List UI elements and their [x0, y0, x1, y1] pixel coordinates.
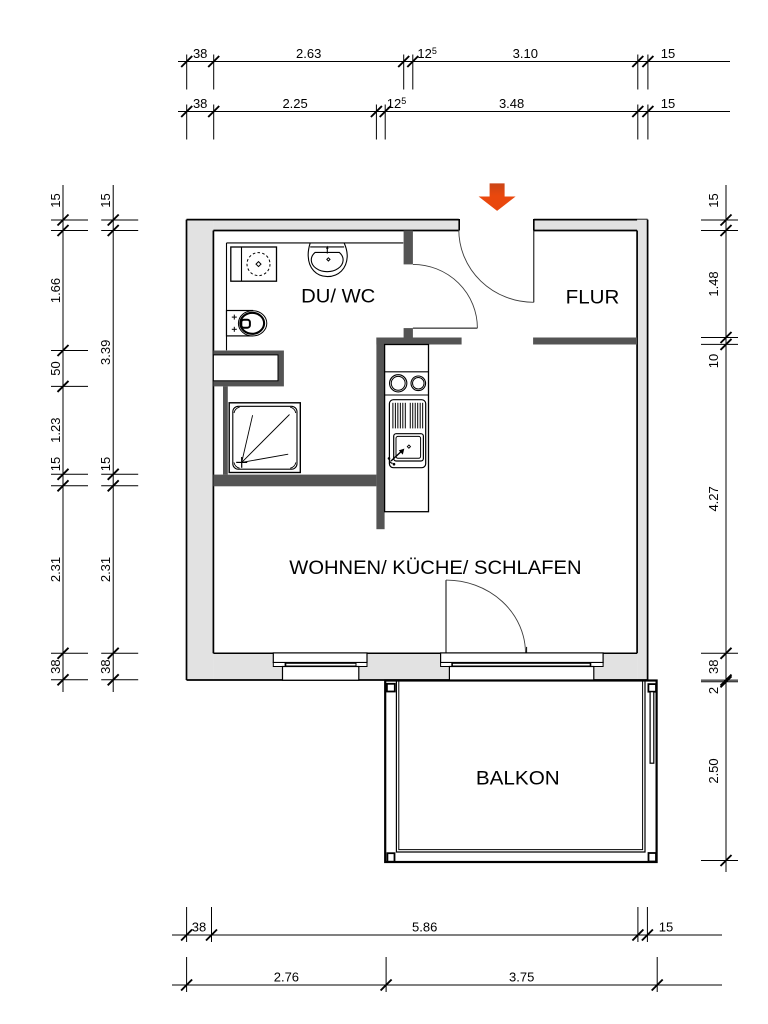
svg-text:15: 15 [706, 193, 721, 207]
svg-text:50: 50 [48, 361, 63, 375]
svg-text:3.75: 3.75 [509, 970, 534, 985]
svg-text:15: 15 [661, 46, 675, 61]
svg-text:DU/ WC: DU/ WC [301, 286, 375, 308]
svg-text:4.27: 4.27 [706, 486, 721, 511]
svg-text:10: 10 [706, 354, 721, 368]
svg-text:1.23: 1.23 [48, 418, 63, 443]
svg-text:15: 15 [98, 457, 113, 471]
svg-text:2.76: 2.76 [274, 970, 299, 985]
svg-text:2.31: 2.31 [98, 557, 113, 582]
svg-text:1.66: 1.66 [48, 278, 63, 303]
svg-text:2: 2 [706, 687, 721, 694]
svg-text:2.25: 2.25 [282, 96, 307, 111]
svg-text:15: 15 [98, 193, 113, 207]
svg-text:1.48: 1.48 [706, 271, 721, 296]
svg-text:FLUR: FLUR [566, 287, 620, 309]
svg-text:38: 38 [48, 659, 63, 673]
svg-text:15: 15 [48, 193, 63, 207]
svg-text:15: 15 [659, 920, 673, 935]
svg-text:2.31: 2.31 [48, 557, 63, 582]
svg-text:3.48: 3.48 [499, 96, 524, 111]
svg-text:38: 38 [193, 96, 207, 111]
svg-text:3.39: 3.39 [98, 340, 113, 365]
svg-text:3.10: 3.10 [513, 46, 538, 61]
svg-text:38: 38 [192, 920, 206, 935]
svg-text:BALKON: BALKON [476, 768, 560, 790]
svg-text:2.50: 2.50 [706, 758, 721, 783]
svg-text:2.63: 2.63 [296, 46, 321, 61]
svg-text:5.86: 5.86 [412, 920, 437, 935]
svg-text:WOHNEN/ KÜCHE/ SCHLAFEN: WOHNEN/ KÜCHE/ SCHLAFEN [289, 557, 581, 579]
svg-text:15: 15 [48, 457, 63, 471]
svg-text:38: 38 [98, 659, 113, 673]
svg-text:38: 38 [706, 660, 721, 674]
svg-text:38: 38 [193, 46, 207, 61]
svg-text:15: 15 [661, 96, 675, 111]
